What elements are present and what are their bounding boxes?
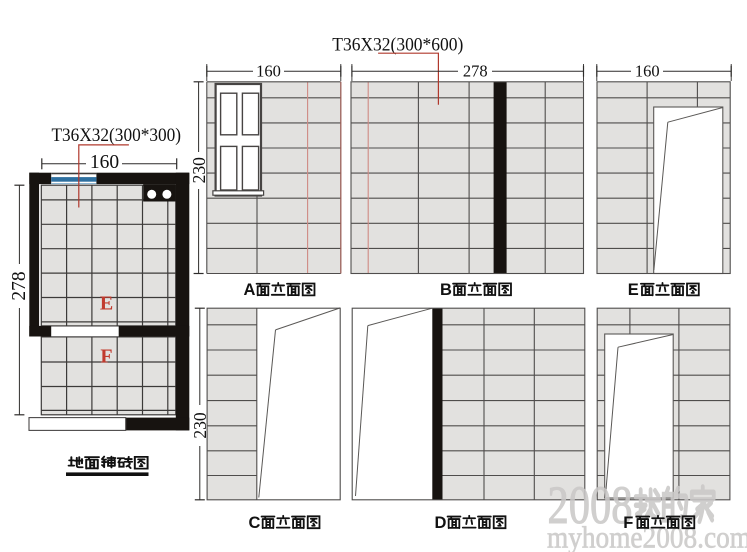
svg-text:230: 230 <box>189 157 209 184</box>
svg-text:D: D <box>435 514 447 532</box>
svg-text:278: 278 <box>463 62 488 81</box>
svg-text:160: 160 <box>90 152 119 173</box>
svg-text:T36X32(300*300): T36X32(300*300) <box>52 125 182 146</box>
svg-text:B: B <box>440 281 452 299</box>
svg-text:160: 160 <box>256 62 281 81</box>
svg-text:160: 160 <box>635 62 660 81</box>
svg-text:278: 278 <box>9 271 30 300</box>
svg-text:myhome2008.com: myhome2008.com <box>547 520 747 552</box>
svg-text:F: F <box>623 514 633 532</box>
svg-text:230: 230 <box>190 412 210 439</box>
svg-text:A: A <box>244 281 256 299</box>
svg-text:C: C <box>249 514 261 532</box>
svg-text:E: E <box>100 293 113 315</box>
svg-text:E: E <box>628 281 639 299</box>
svg-text:T36X32(300*600): T36X32(300*600) <box>332 35 463 56</box>
svg-text:F: F <box>100 346 112 368</box>
